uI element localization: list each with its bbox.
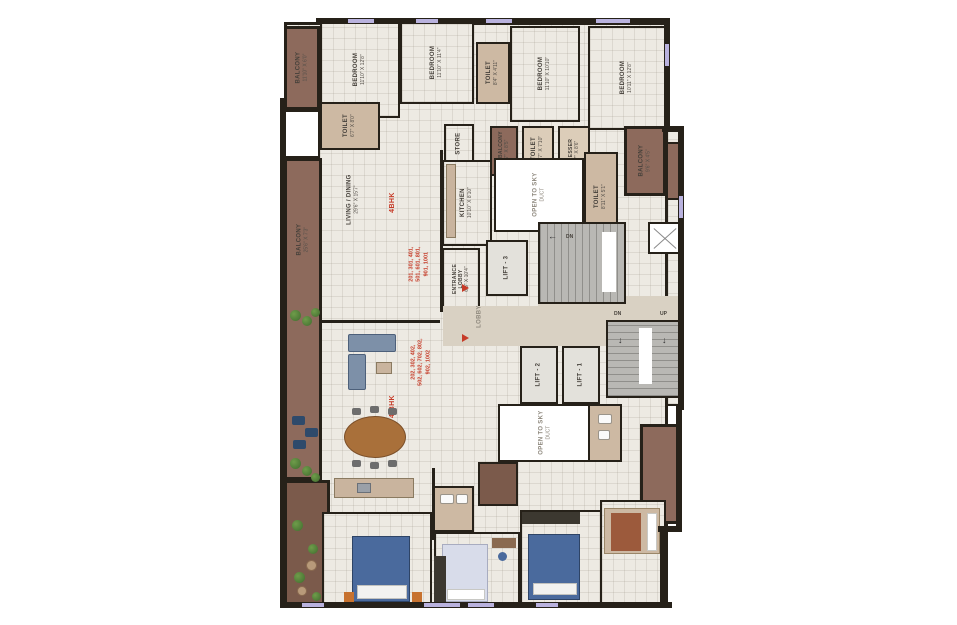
duct-cross	[648, 222, 682, 254]
room-entrance-lobby: ENTRANCELOBBY6'3" X 10'4"	[442, 248, 480, 310]
entry-arrow-icon	[462, 334, 469, 342]
window-icon	[536, 603, 558, 607]
duct-label: OPEN TO SKY	[538, 411, 545, 455]
lounge-chair-icon	[292, 416, 305, 425]
arrow-down-icon: ↓	[618, 336, 623, 345]
lift-label: LIFT - 3	[503, 256, 510, 280]
stairs-lower: ↓ ↓	[606, 320, 682, 398]
wall-segment	[664, 18, 670, 130]
chair-icon	[370, 462, 379, 469]
room-label: BALCONY	[638, 145, 645, 177]
stairs-dn-label: DN	[566, 234, 573, 240]
bed-icon	[352, 536, 410, 602]
plant-icon	[294, 572, 305, 583]
plant-icon	[311, 473, 320, 482]
room-label: BEDROOM	[430, 46, 437, 79]
window-icon	[302, 603, 324, 607]
lounge-chair-icon	[293, 440, 306, 449]
wall-segment	[432, 468, 435, 540]
window-icon	[348, 19, 374, 23]
stairs-dn-label: DN	[614, 311, 621, 317]
kitchen-counter-icon	[334, 478, 414, 498]
window-icon	[596, 19, 630, 23]
room-dims: 8'4" X 4'11"	[494, 60, 500, 85]
floor-plan-page: BALCONY11'10" X 6'0" BEDROOM11'10" X 12'…	[0, 0, 957, 625]
room-label: KITCHEN	[460, 187, 467, 218]
duct-top-left	[284, 110, 320, 158]
toilet-bottom-1	[432, 486, 474, 532]
room-label: BEDROOM	[538, 57, 545, 90]
chair-icon	[352, 460, 361, 467]
sofa-icon	[348, 354, 366, 390]
wardrobe-icon	[434, 556, 446, 602]
room-label: TOILET	[594, 184, 601, 209]
room-dims: 11'10" X 10'10"	[546, 57, 552, 90]
stair-landing	[602, 232, 616, 292]
plant-icon	[292, 520, 303, 531]
wall-segment	[280, 98, 286, 608]
room-label: BALCONY	[295, 52, 302, 84]
stairs-upper: ← DN	[538, 222, 626, 304]
room-dims: 11'10" X 12'8"	[361, 53, 367, 86]
sink-icon	[357, 483, 371, 493]
room-dims: 6'7" X 8'0"	[351, 114, 357, 137]
plant-icon	[290, 458, 301, 469]
bed-icon	[528, 534, 580, 600]
duct-label-2: DUCT	[540, 173, 546, 217]
plant-icon	[308, 544, 318, 554]
pillow-icon	[357, 585, 407, 599]
room-dims: 11'10" X 11'4"	[438, 46, 444, 79]
room-store: STORE	[444, 124, 474, 164]
room-bedroom-4: BEDROOM10'11" X 12'8"	[588, 26, 666, 130]
window-icon	[665, 44, 669, 66]
wc-icon	[456, 494, 468, 504]
duct-label-2: DUCT	[546, 411, 552, 455]
wall-segment	[678, 126, 684, 410]
dry-balcony-bottom	[478, 462, 518, 506]
lift-1: LIFT - 1	[562, 346, 600, 404]
patio-chair-icon	[297, 586, 307, 596]
room-kitchen: KITCHEN10'10" X 8'10"	[442, 160, 492, 246]
room-dims: 8'11" X 5'1"	[602, 184, 608, 209]
balcony-right: BALCONY9'6" X 4'5"	[624, 126, 666, 196]
window-icon	[424, 603, 460, 607]
room-label: ENTRANCE	[452, 264, 458, 294]
room-bedroom-3: BEDROOM11'10" X 10'10"	[510, 26, 580, 122]
duct-open-to-sky-bottom: OPEN TO SKYDUCT	[498, 404, 592, 462]
wardrobe-icon	[522, 512, 580, 524]
room-label: TOILET	[343, 114, 350, 137]
washbasin-icon	[440, 494, 454, 504]
desk-icon	[492, 538, 516, 548]
room-toilet-top: TOILET8'4" X 4'11"	[476, 42, 510, 104]
nightstand-icon	[412, 592, 422, 602]
pillow-icon	[533, 583, 577, 595]
entry-arrow-icon	[462, 284, 469, 292]
room-label: TOILET	[486, 60, 493, 85]
chair-icon	[388, 460, 397, 467]
duct-label: OPEN TO SKY	[532, 173, 539, 217]
room-label: STORE	[455, 133, 462, 155]
chair-icon	[388, 408, 397, 415]
bed-icon	[442, 544, 488, 602]
duct-open-to-sky-top: OPEN TO SKYDUCT	[494, 158, 584, 232]
balcony-top-left: BALCONY11'10" X 6'0"	[284, 26, 320, 110]
chair-icon	[352, 408, 361, 415]
lift-3: LIFT - 3	[486, 240, 528, 296]
bed-icon	[604, 508, 660, 554]
room-dims: 11'10" X 6'0"	[303, 52, 309, 84]
nightstand-icon	[344, 592, 354, 602]
sofa-icon	[348, 334, 396, 352]
arrow-down-icon: ↓	[662, 336, 667, 345]
coffee-table-icon	[376, 362, 392, 374]
lift-label: LIFT - 1	[577, 363, 584, 387]
stair-landing	[639, 328, 652, 384]
pillow-icon	[447, 589, 485, 600]
window-icon	[468, 603, 494, 607]
room-bedroom-2: BEDROOM11'10" X 11'4"	[400, 22, 474, 104]
pillow-icon	[647, 513, 657, 551]
chair-icon	[498, 552, 507, 561]
wall-segment	[660, 526, 666, 606]
wall-segment	[676, 404, 682, 530]
room-label: BEDROOM	[353, 53, 360, 86]
patio-chair-icon	[306, 560, 317, 571]
toilet-bottom-2	[588, 404, 622, 462]
window-icon	[416, 19, 438, 23]
room-dims: 10'10" X 8'10"	[468, 187, 474, 218]
blanket-icon	[611, 513, 641, 551]
room-dims: 9'6" X 4'5"	[646, 145, 652, 177]
plant-icon	[302, 316, 312, 326]
plant-icon	[311, 308, 320, 317]
room-toilet-left: TOILET6'7" X 8'0"	[320, 102, 380, 150]
plant-icon	[290, 310, 301, 321]
chair-icon	[370, 406, 379, 413]
stairs-up-label: UP	[660, 311, 667, 317]
lift-label: LIFT - 2	[535, 363, 542, 387]
plant-icon	[312, 592, 321, 601]
kitchen-counter-icon	[446, 164, 456, 238]
window-icon	[679, 196, 683, 218]
arrow-left-icon: ←	[548, 232, 557, 241]
wc-icon	[598, 430, 610, 440]
washbasin-icon	[598, 414, 612, 424]
wall-segment	[322, 320, 440, 323]
room-dims: 10'11" X 12'8"	[628, 61, 634, 94]
wall-segment	[440, 150, 443, 312]
dining-table-icon	[344, 416, 406, 458]
lift-2: LIFT - 2	[520, 346, 558, 404]
lounge-chair-icon	[305, 428, 318, 437]
room-label: BEDROOM	[620, 61, 627, 94]
window-icon	[486, 19, 512, 23]
